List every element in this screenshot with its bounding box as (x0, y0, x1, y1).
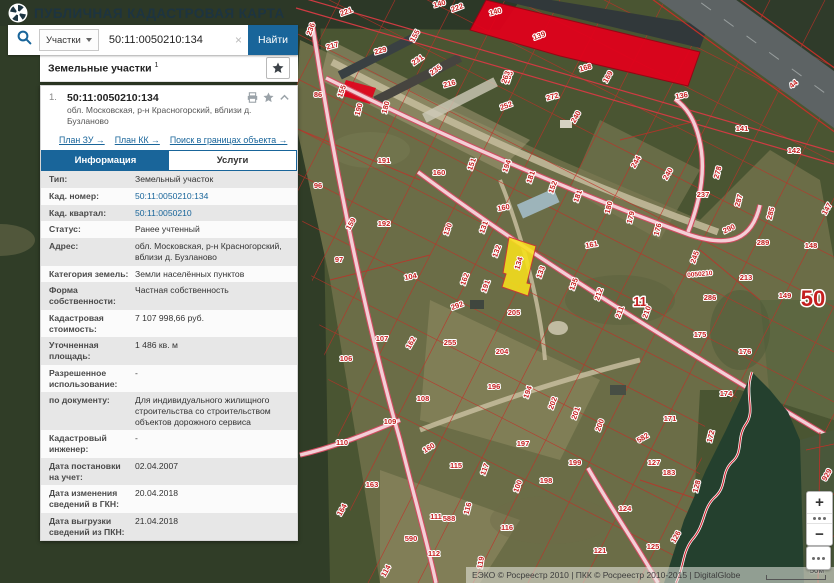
card-header: 1. 50:11:0050210:134 обл. Московская, р-… (41, 86, 297, 130)
table-row: Дата выгрузки сведений из ПКН: 21.04.201… (41, 513, 297, 540)
parcel-info-table: Тип: Земельный участок Кад. номер: 50:11… (41, 171, 297, 540)
svg-text:107: 107 (376, 334, 389, 343)
table-row: Кад. квартал: 50:11:0050210 (41, 205, 297, 222)
map-tools-button[interactable] (806, 546, 831, 570)
svg-text:50: 50 (801, 286, 825, 311)
svg-text:127: 127 (648, 458, 661, 467)
table-row: Разрешенное использование: - (41, 365, 297, 392)
table-row: Категория земель: Земли населённых пункт… (41, 266, 297, 283)
svg-text:141: 141 (736, 124, 749, 133)
print-icon[interactable] (247, 92, 258, 103)
search-bar: Участки × Найти (8, 25, 298, 55)
zoom-in-button[interactable]: + (807, 492, 832, 513)
parcel-address: обл. Московская, р-н Красногорский, вбли… (67, 105, 267, 126)
favorite-star-icon[interactable] (263, 92, 274, 103)
parcel-info-card: 1. 50:11:0050210:134 обл. Московская, р-… (40, 85, 298, 541)
svg-text:205: 205 (508, 308, 521, 317)
svg-text:163: 163 (366, 480, 379, 489)
svg-text:197: 197 (517, 439, 530, 448)
tab-information[interactable]: Информация (42, 151, 169, 170)
result-index: 1. (49, 92, 57, 103)
star-icon (272, 62, 284, 74)
svg-text:183: 183 (663, 468, 676, 477)
chevron-down-icon (86, 38, 92, 42)
card-tabs: Информация Услуги (41, 150, 297, 171)
results-header: Земельные участки 1 (40, 55, 298, 82)
svg-text:588: 588 (443, 514, 456, 523)
scale-bar-line (766, 575, 826, 580)
svg-text:86: 86 (314, 90, 322, 99)
app: 2212362171552292312352162038615519018026… (0, 0, 834, 583)
find-button[interactable]: Найти (248, 25, 298, 55)
svg-text:213: 213 (740, 273, 753, 282)
svg-text:176: 176 (739, 347, 752, 356)
terrain-patch (710, 290, 770, 370)
svg-text:255: 255 (444, 338, 457, 347)
tab-services[interactable]: Услуги (169, 151, 296, 170)
terrain-patch (490, 496, 610, 544)
plan-kk-link[interactable]: План КК → (115, 135, 160, 145)
zoom-out-button[interactable]: − (807, 524, 832, 545)
svg-text:590: 590 (405, 534, 418, 543)
table-row: Дата изменения сведений в ГКН: 20.04.201… (41, 485, 297, 512)
card-header-icons (247, 92, 290, 103)
svg-text:125: 125 (647, 542, 660, 551)
svg-text:106: 106 (340, 354, 353, 363)
scale-bar: 50м (766, 568, 828, 582)
svg-text:174: 174 (720, 389, 733, 398)
table-row: Тип: Земельный участок (41, 171, 297, 188)
plan-zu-link[interactable]: План ЗУ → (59, 135, 105, 145)
svg-text:199: 199 (569, 458, 582, 467)
zoom-slider-handle[interactable] (807, 513, 832, 524)
zoom-control: + − (806, 491, 833, 546)
search-category-dropdown[interactable]: Участки (39, 29, 99, 51)
collapse-icon[interactable] (279, 92, 290, 103)
table-row: Форма собственности: Частная собственнос… (41, 282, 297, 309)
table-row: по документу: Для индивидуального жилищн… (41, 392, 297, 430)
svg-text:192: 192 (378, 219, 391, 228)
search-input[interactable] (107, 33, 229, 47)
svg-text:111: 111 (430, 512, 442, 521)
map-footer: ЕЭКО © Росреестр 2010 | ПКК © Росреестр … (466, 567, 834, 583)
svg-text:237: 237 (697, 190, 710, 199)
svg-text:112: 112 (428, 549, 440, 558)
table-row: Статус: Ранее учтенный (41, 221, 297, 238)
card-links: План ЗУ → План КК → Поиск в границах объ… (59, 135, 297, 145)
attribution-text: ЕЭКО © Росреестр 2010 | ПКК © Росреестр … (472, 570, 740, 580)
table-row: Кад. номер: 50:11:0050210:134 (41, 188, 297, 205)
svg-text:121: 121 (594, 546, 607, 555)
favorites-button[interactable] (266, 57, 290, 79)
svg-text:286: 286 (704, 293, 717, 302)
svg-text:116: 116 (501, 523, 513, 532)
app-header: ПУБЛИЧНАЯ КАДАСТРОВАЯ КАРТА (8, 3, 285, 23)
page-title: ПУБЛИЧНАЯ КАДАСТРОВАЯ КАРТА (34, 6, 285, 21)
svg-text:148: 148 (805, 241, 818, 250)
table-row: Дата постановки на учет: 02.04.2007 (41, 458, 297, 485)
svg-text:160: 160 (433, 168, 446, 177)
svg-text:108: 108 (417, 394, 430, 403)
results-title: Земельные участки 1 (48, 62, 158, 75)
cad-quarter-link[interactable]: 50:11:0050210 (133, 208, 297, 219)
search-category-label: Участки (46, 35, 81, 46)
table-row: Кадастровая стоимость: 7 107 998,66 руб. (41, 310, 297, 337)
table-row: Уточненная площадь: 1 486 кв. м (41, 337, 297, 364)
search-icon (17, 30, 32, 50)
results-count: 1 (154, 62, 158, 69)
svg-text:110: 110 (336, 438, 348, 447)
svg-text:97: 97 (335, 255, 343, 264)
svg-text:191: 191 (378, 156, 391, 165)
svg-text:96: 96 (314, 181, 322, 190)
svg-text:196: 196 (488, 382, 501, 391)
svg-text:124: 124 (619, 504, 632, 513)
table-row: Адрес: обл. Московская, р-н Красногорски… (41, 238, 297, 265)
svg-text:204: 204 (496, 347, 509, 356)
svg-text:149: 149 (779, 291, 792, 300)
table-row: Кадастровый инженер: - (41, 430, 297, 457)
svg-text:198: 198 (540, 476, 553, 485)
cad-number-link[interactable]: 50:11:0050210:134 (133, 191, 297, 202)
svg-text:109: 109 (384, 417, 397, 426)
svg-text:115: 115 (450, 461, 462, 470)
search-in-bounds-link[interactable]: Поиск в границах объекта → (170, 135, 288, 145)
svg-text:175: 175 (694, 330, 707, 339)
svg-text:142: 142 (788, 146, 801, 155)
terrain-patch (330, 132, 410, 168)
clear-search-icon[interactable]: × (229, 33, 248, 47)
svg-text:289: 289 (757, 238, 770, 247)
rosreestr-logo-icon (8, 3, 28, 23)
svg-text:171: 171 (664, 414, 677, 423)
results-title-text: Земельные участки (48, 62, 152, 74)
